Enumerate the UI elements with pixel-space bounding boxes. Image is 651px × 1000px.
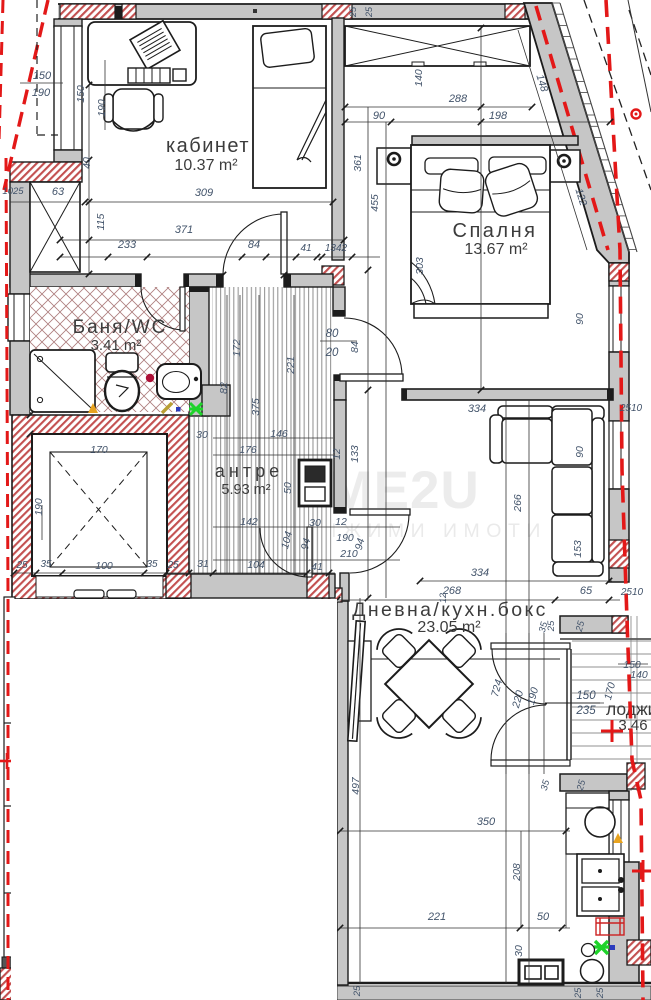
svg-text:63: 63 [52, 186, 65, 198]
svg-text:25: 25 [364, 6, 374, 18]
svg-text:455: 455 [369, 194, 381, 212]
svg-text:82: 82 [218, 382, 230, 394]
svg-text:208: 208 [511, 863, 523, 882]
svg-text:3.41 m²: 3.41 m² [91, 337, 142, 354]
svg-text:150: 150 [576, 690, 596, 702]
svg-text:497: 497 [350, 776, 362, 795]
svg-text:40: 40 [81, 157, 93, 169]
svg-text:20: 20 [325, 347, 339, 359]
svg-text:кабинет: кабинет [166, 135, 250, 157]
svg-text:50: 50 [537, 911, 550, 923]
svg-text:198: 198 [489, 110, 508, 122]
svg-text:31: 31 [197, 558, 209, 570]
svg-text:140: 140 [630, 669, 648, 681]
svg-text:5.93 m²: 5.93 m² [221, 482, 270, 498]
svg-text:190: 190 [336, 532, 354, 544]
svg-text:104: 104 [247, 559, 265, 571]
svg-text:371: 371 [175, 224, 193, 236]
svg-text:90: 90 [574, 446, 586, 458]
svg-text:172: 172 [231, 339, 243, 357]
svg-text:190: 190 [96, 99, 108, 117]
svg-text:25: 25 [573, 987, 584, 999]
svg-text:309: 309 [195, 187, 213, 199]
svg-text:190: 190 [33, 498, 45, 516]
svg-text:25: 25 [166, 560, 179, 571]
svg-text:1342: 1342 [325, 243, 348, 254]
svg-text:190: 190 [32, 87, 51, 99]
svg-text:2510: 2510 [620, 587, 644, 598]
svg-text:Дневна/кухн.бокс: Дневна/кухн.бокс [352, 599, 548, 621]
svg-text:288: 288 [448, 93, 468, 105]
svg-text:266: 266 [512, 494, 524, 513]
svg-text:Спалня: Спалня [453, 220, 538, 242]
svg-text:133: 133 [349, 445, 361, 463]
svg-text:35: 35 [40, 559, 52, 570]
svg-text:30: 30 [513, 945, 525, 957]
svg-text:176: 176 [239, 444, 257, 456]
svg-text:235: 235 [575, 705, 596, 717]
svg-text:140: 140 [413, 69, 425, 87]
svg-text:25: 25 [348, 6, 358, 18]
svg-text:150: 150 [75, 85, 87, 103]
svg-text:90: 90 [373, 110, 386, 122]
svg-text:25: 25 [15, 560, 28, 571]
svg-text:375: 375 [250, 398, 262, 416]
svg-text:100: 100 [95, 560, 113, 572]
svg-text:150: 150 [33, 70, 52, 82]
svg-text:2510: 2510 [619, 403, 643, 414]
svg-text:25: 25 [352, 985, 363, 997]
svg-text:142: 142 [240, 516, 258, 528]
svg-text:35: 35 [146, 559, 158, 570]
svg-text:10.37 m²: 10.37 m² [174, 157, 238, 174]
svg-text:90: 90 [574, 313, 586, 325]
svg-text:23.05 m²: 23.05 m² [417, 619, 481, 636]
svg-text:221: 221 [427, 911, 446, 923]
svg-text:30: 30 [196, 429, 208, 441]
svg-text:12: 12 [332, 448, 343, 460]
svg-text:50: 50 [282, 482, 294, 494]
svg-text:303: 303 [414, 257, 426, 275]
svg-text:115: 115 [95, 213, 107, 230]
svg-text:Баня/WC: Баня/WC [73, 317, 168, 338]
svg-text:1025: 1025 [2, 186, 24, 197]
svg-text:12: 12 [438, 593, 448, 603]
svg-text:25: 25 [595, 987, 606, 999]
svg-text:30: 30 [309, 517, 321, 529]
svg-text:41: 41 [300, 243, 311, 254]
svg-text:антре: антре [215, 461, 283, 481]
svg-text:233: 233 [117, 239, 137, 251]
svg-text:361: 361 [352, 154, 364, 172]
svg-text:170: 170 [90, 444, 108, 456]
svg-text:146: 146 [270, 428, 288, 440]
svg-text:210: 210 [339, 548, 358, 560]
svg-text:334: 334 [471, 567, 489, 579]
svg-text:334: 334 [468, 403, 486, 415]
svg-text:84: 84 [248, 239, 260, 251]
svg-text:12: 12 [335, 516, 347, 528]
svg-text:350: 350 [477, 816, 496, 828]
svg-text:153: 153 [572, 540, 584, 558]
svg-text:80: 80 [326, 328, 339, 340]
svg-text:41: 41 [311, 561, 323, 573]
svg-text:221: 221 [285, 356, 297, 375]
svg-text:65: 65 [580, 585, 593, 597]
svg-text:84: 84 [349, 341, 361, 353]
svg-text:13.67 m²: 13.67 m² [464, 241, 528, 258]
